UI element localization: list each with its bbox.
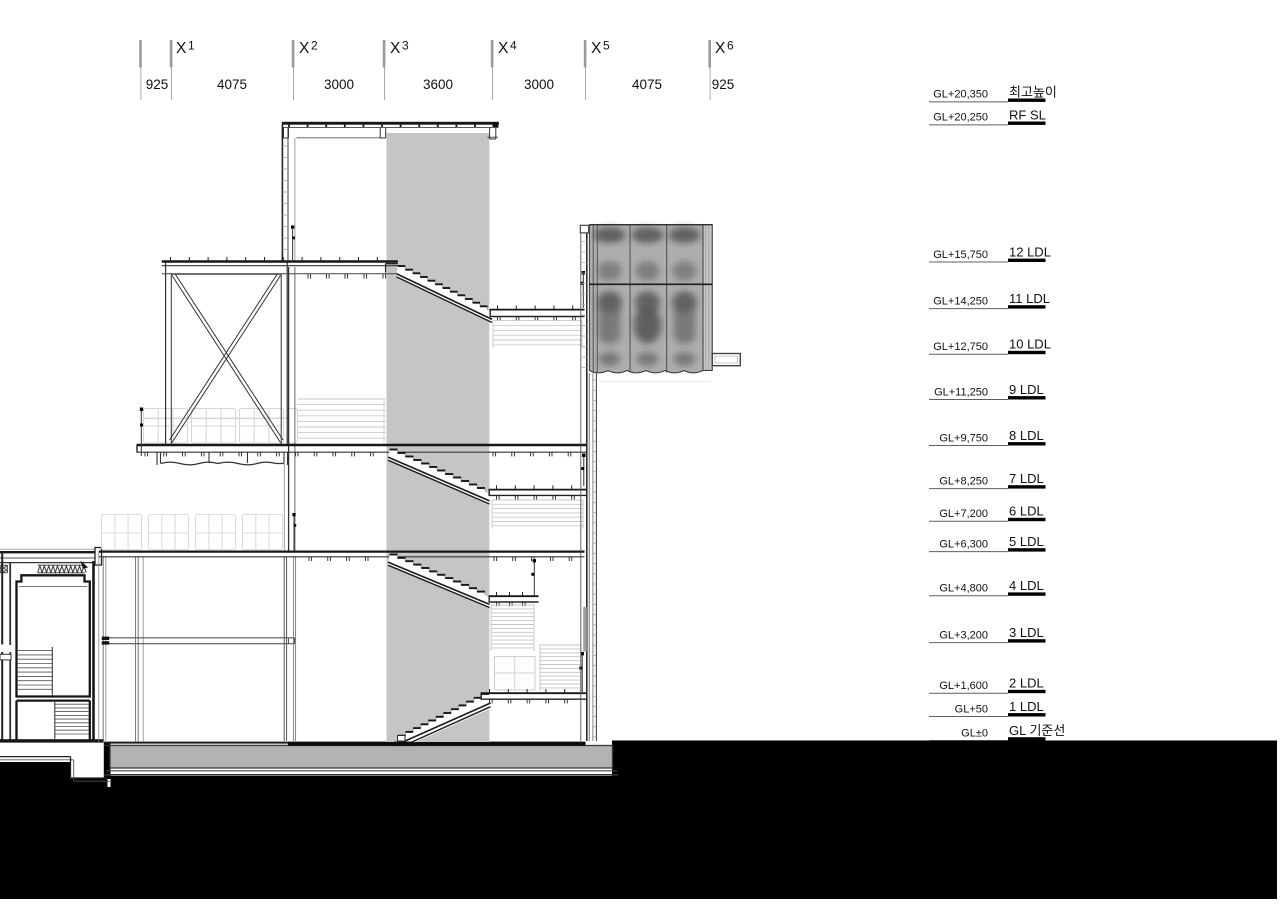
svg-text:3000: 3000 bbox=[324, 77, 354, 92]
svg-text:GL+12,750: GL+12,750 bbox=[933, 341, 988, 353]
svg-text:GL+3,200: GL+3,200 bbox=[939, 629, 988, 641]
svg-text:4075: 4075 bbox=[632, 77, 662, 92]
svg-text:6: 6 bbox=[727, 39, 734, 53]
svg-text:X: X bbox=[591, 40, 602, 57]
svg-text:925: 925 bbox=[712, 77, 735, 92]
svg-text:GL±0: GL±0 bbox=[961, 727, 988, 739]
svg-text:X: X bbox=[299, 40, 310, 57]
svg-text:3: 3 bbox=[402, 39, 409, 53]
svg-text:GL+20,250: GL+20,250 bbox=[933, 112, 988, 124]
svg-text:X: X bbox=[715, 40, 726, 57]
svg-text:GL+15,750: GL+15,750 bbox=[933, 249, 988, 261]
svg-text:최고높이: 최고높이 bbox=[1009, 84, 1057, 99]
svg-text:RF SL: RF SL bbox=[1009, 107, 1046, 122]
svg-text:5: 5 bbox=[603, 39, 610, 53]
svg-text:GL+14,250: GL+14,250 bbox=[933, 295, 988, 307]
svg-text:12 LDL: 12 LDL bbox=[1009, 244, 1051, 259]
svg-text:5 LDL: 5 LDL bbox=[1009, 534, 1044, 549]
svg-text:GL+1,600: GL+1,600 bbox=[939, 680, 988, 692]
svg-text:X: X bbox=[390, 40, 401, 57]
svg-text:925: 925 bbox=[146, 77, 169, 92]
svg-text:GL+4,800: GL+4,800 bbox=[939, 583, 988, 595]
svg-text:11 LDL: 11 LDL bbox=[1009, 291, 1050, 306]
svg-text:GL+11,250: GL+11,250 bbox=[934, 386, 988, 398]
svg-text:3600: 3600 bbox=[423, 77, 453, 92]
svg-text:GL+20,350: GL+20,350 bbox=[933, 89, 988, 101]
svg-text:GL+7,200: GL+7,200 bbox=[939, 508, 988, 520]
svg-text:GL+6,300: GL+6,300 bbox=[939, 538, 988, 550]
svg-text:2 LDL: 2 LDL bbox=[1009, 676, 1044, 691]
svg-text:10 LDL: 10 LDL bbox=[1009, 337, 1051, 352]
svg-text:3 LDL: 3 LDL bbox=[1009, 625, 1044, 640]
svg-text:2: 2 bbox=[311, 39, 318, 53]
svg-text:X: X bbox=[498, 40, 509, 57]
svg-text:3000: 3000 bbox=[524, 77, 554, 92]
svg-text:6 LDL: 6 LDL bbox=[1009, 504, 1044, 519]
svg-text:GL+50: GL+50 bbox=[955, 703, 988, 715]
svg-text:8 LDL: 8 LDL bbox=[1009, 428, 1044, 443]
svg-text:GL+9,750: GL+9,750 bbox=[939, 432, 988, 444]
svg-text:9 LDL: 9 LDL bbox=[1009, 382, 1044, 397]
svg-text:GL 기준선: GL 기준선 bbox=[1009, 723, 1065, 738]
svg-text:1 LDL: 1 LDL bbox=[1009, 699, 1044, 714]
svg-text:1: 1 bbox=[188, 39, 195, 53]
svg-text:GL+8,250: GL+8,250 bbox=[939, 475, 988, 487]
svg-text:7 LDL: 7 LDL bbox=[1009, 471, 1044, 486]
svg-text:4 LDL: 4 LDL bbox=[1009, 578, 1044, 593]
svg-text:X: X bbox=[176, 40, 187, 57]
svg-text:4: 4 bbox=[510, 39, 517, 53]
svg-text:4075: 4075 bbox=[217, 77, 247, 92]
